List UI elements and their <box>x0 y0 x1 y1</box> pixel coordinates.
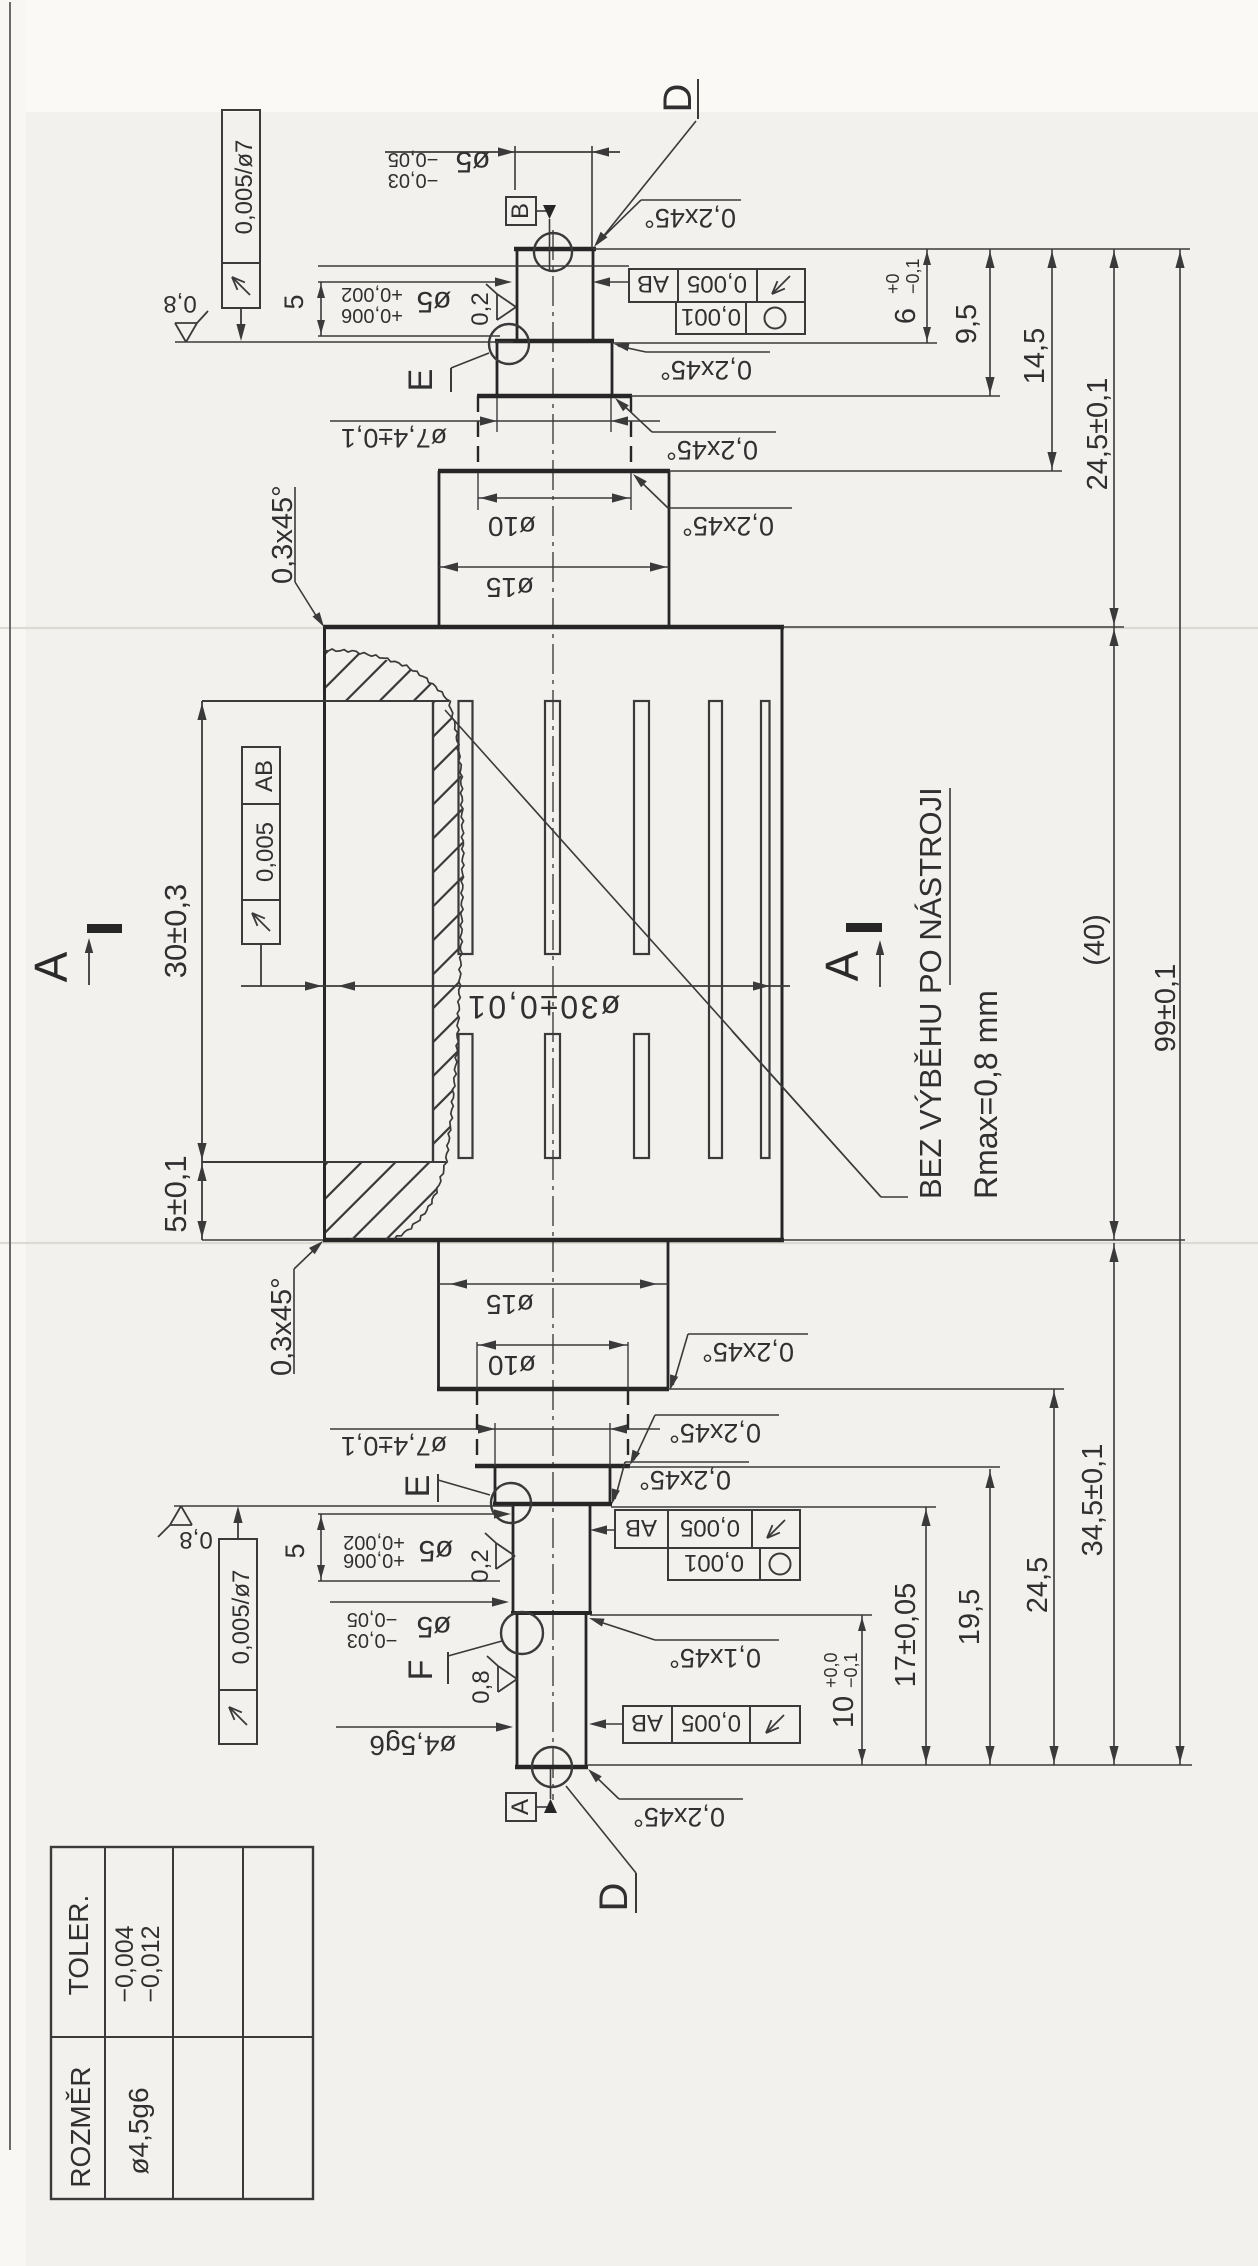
svg-text:+0,006: +0,006 <box>341 304 403 326</box>
svg-text:AB: AB <box>631 1709 663 1736</box>
svg-text:ø15: ø15 <box>486 1289 534 1320</box>
svg-text:ø10: ø10 <box>488 511 536 542</box>
svg-text:E: E <box>402 369 440 392</box>
svg-text:99±0,1: 99±0,1 <box>1150 964 1182 1053</box>
svg-text:ø5: ø5 <box>455 145 490 178</box>
svg-text:0,1x45°: 0,1x45° <box>669 1643 761 1673</box>
svg-text:0,8: 0,8 <box>163 290 196 317</box>
svg-text:ø7,4±0,1: ø7,4±0,1 <box>341 1431 447 1461</box>
svg-text:0,2x45°: 0,2x45° <box>639 1465 731 1495</box>
svg-text:D: D <box>656 84 700 113</box>
svg-text:24,5±0,1: 24,5±0,1 <box>1082 378 1114 491</box>
svg-text:ROZMĚR: ROZMĚR <box>65 2066 96 2187</box>
svg-text:−0,004: −0,004 <box>111 1925 139 2002</box>
svg-text:0,2x45°: 0,2x45° <box>633 1802 725 1832</box>
svg-text:−0,03: −0,03 <box>388 169 439 191</box>
svg-text:0,2x45°: 0,2x45° <box>682 511 774 541</box>
svg-text:24,5: 24,5 <box>1022 1557 1054 1613</box>
svg-text:5: 5 <box>279 294 309 309</box>
svg-text:ø5: ø5 <box>416 1610 451 1643</box>
svg-text:−0,05: −0,05 <box>347 1608 398 1630</box>
svg-text:30±0,3: 30±0,3 <box>158 884 193 979</box>
svg-text:5: 5 <box>280 1543 310 1558</box>
svg-text:0,2: 0,2 <box>467 292 494 325</box>
svg-text:+0,0: +0,0 <box>821 1652 841 1688</box>
svg-text:ø7,4±0,1: ø7,4±0,1 <box>341 423 447 453</box>
svg-text:0,2x45°: 0,2x45° <box>669 1418 761 1448</box>
svg-text:9,5: 9,5 <box>951 304 983 344</box>
svg-text:0,005: 0,005 <box>681 1709 741 1736</box>
svg-text:5±0,1: 5±0,1 <box>158 1155 193 1232</box>
svg-text:−0,05: −0,05 <box>388 148 439 170</box>
svg-text:−0,012: −0,012 <box>137 1925 165 2002</box>
svg-text:ø15: ø15 <box>486 572 534 603</box>
svg-text:+0,002: +0,002 <box>341 283 403 305</box>
svg-text:34,5±0,1: 34,5±0,1 <box>1077 1444 1109 1557</box>
svg-text:6: 6 <box>890 308 922 324</box>
svg-text:A: A <box>816 950 868 981</box>
svg-text:19,5: 19,5 <box>954 1589 986 1645</box>
svg-text:0,8: 0,8 <box>179 1526 212 1553</box>
svg-text:ø5: ø5 <box>418 1534 453 1567</box>
svg-text:0,005/ø7: 0,005/ø7 <box>228 1570 255 1665</box>
svg-text:0,005: 0,005 <box>252 822 279 882</box>
svg-text:D: D <box>592 1883 636 1912</box>
svg-text:+0,002: +0,002 <box>343 1531 405 1553</box>
svg-text:Rmax=0,8 mm: Rmax=0,8 mm <box>968 990 1004 1199</box>
svg-text:B: B <box>507 203 534 219</box>
svg-text:−0,03: −0,03 <box>347 1629 398 1651</box>
svg-text:0,8: 0,8 <box>468 1670 495 1703</box>
svg-text:F: F <box>402 1660 440 1681</box>
svg-text:ø4,5g6: ø4,5g6 <box>123 2087 154 2174</box>
svg-text:ø30±0,01: ø30±0,01 <box>466 989 621 1025</box>
svg-text:+0: +0 <box>883 273 903 294</box>
svg-text:AB: AB <box>637 270 669 297</box>
svg-text:14,5: 14,5 <box>1019 328 1051 384</box>
svg-text:A: A <box>25 951 77 982</box>
svg-text:(40): (40) <box>1079 914 1111 966</box>
svg-text:0,005/ø7: 0,005/ø7 <box>231 140 258 235</box>
svg-text:TOLER.: TOLER. <box>63 1895 94 1996</box>
svg-text:ø10: ø10 <box>488 1350 536 1381</box>
svg-text:0,001: 0,001 <box>684 1549 744 1576</box>
svg-text:0,2: 0,2 <box>467 1549 494 1582</box>
svg-text:ø4,5g6: ø4,5g6 <box>369 1730 456 1761</box>
svg-text:0,2x45°: 0,2x45° <box>666 435 758 465</box>
svg-text:−0,1: −0,1 <box>841 1652 861 1688</box>
svg-text:AB: AB <box>625 1514 657 1541</box>
svg-text:ø5: ø5 <box>416 285 451 318</box>
svg-text:0,2x45°: 0,2x45° <box>702 1337 794 1367</box>
svg-text:0,001: 0,001 <box>681 303 741 330</box>
svg-text:A: A <box>507 1799 534 1815</box>
svg-text:AB: AB <box>251 760 278 792</box>
svg-text:E: E <box>399 1475 437 1498</box>
svg-text:0,2x45°: 0,2x45° <box>660 355 752 385</box>
svg-text:BEZ VÝBĚHU PO NÁSTROJI: BEZ VÝBĚHU PO NÁSTROJI <box>913 787 948 1199</box>
svg-text:0,2x45°: 0,2x45° <box>644 203 736 233</box>
svg-text:10: 10 <box>828 1696 860 1728</box>
svg-text:−0,1: −0,1 <box>903 258 923 294</box>
svg-text:17±0,05: 17±0,05 <box>890 1583 922 1688</box>
svg-text:0,005: 0,005 <box>687 270 747 297</box>
svg-text:0,005: 0,005 <box>680 1514 740 1541</box>
